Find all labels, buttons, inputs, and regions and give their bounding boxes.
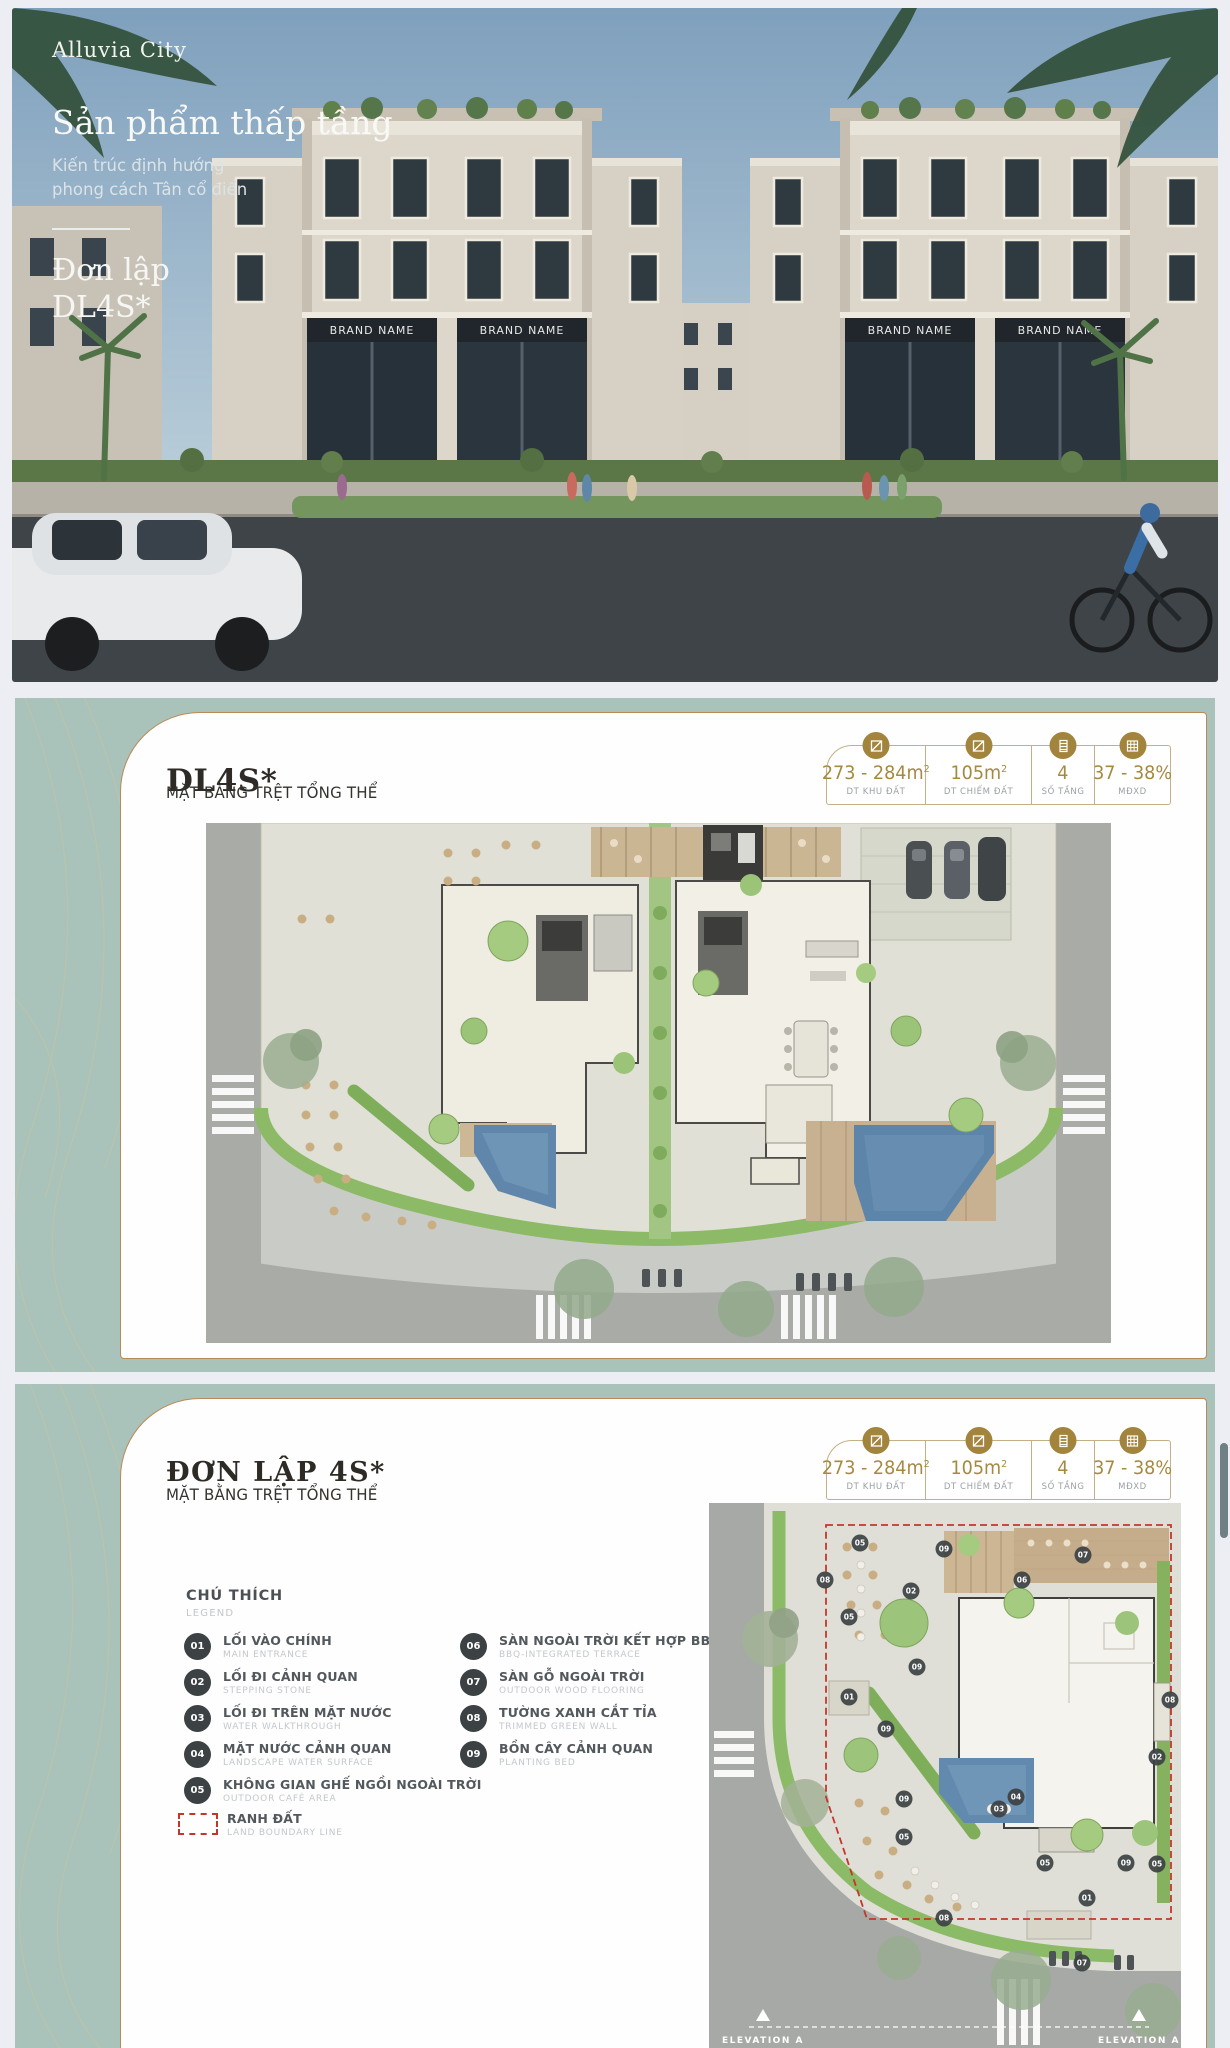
card2-title: ĐƠN LẬP 4S* — [166, 1457, 386, 1488]
plan-marker: 07 — [1074, 1955, 1091, 1972]
area-icon — [863, 732, 890, 759]
legend-item: 02LỐI ĐI CẢNH QUANSTEPPING STONE — [184, 1669, 474, 1705]
svg-text:05: 05 — [1040, 1859, 1050, 1868]
legend-item-label-vi: SÀN NGOÀI TRỜI KẾT HỢP BBQ — [499, 1633, 721, 1648]
legend-subtitle: LEGEND — [186, 1608, 234, 1619]
stat-label: SỐ TẦNG — [1042, 787, 1085, 797]
stat-value: 37 - 38% — [1093, 763, 1172, 784]
svg-text:09: 09 — [912, 1663, 922, 1672]
hero-subtitle: Kiến trúc định hướng phong cách Tân cổ đ… — [52, 154, 393, 202]
stat-floors: 4 SỐ TẦNG — [1032, 1441, 1095, 1499]
svg-text:02: 02 — [1152, 1753, 1162, 1762]
svg-text:01: 01 — [844, 1693, 854, 1702]
card-site-plan-dl4s: DL4S* MẶT BẰNG TRỆT TỔNG THỂ 273 - 284m2… — [15, 698, 1215, 1372]
legend-item-label-en: OUTDOOR WOOD FLOORING — [499, 1686, 645, 1696]
plan-marker: 03 — [991, 1801, 1008, 1818]
floors-icon — [1050, 1427, 1077, 1454]
site-plan-detail: ELEVATION A ELEVATION A 0509070602080509… — [709, 1503, 1181, 2048]
legend-item-number: 08 — [460, 1705, 487, 1732]
svg-text:07: 07 — [1078, 1551, 1088, 1560]
stat-label: DT CHIẾM ĐẤT — [944, 1482, 1013, 1492]
svg-text:02: 02 — [906, 1587, 916, 1596]
plan-marker: 05 — [1149, 1856, 1166, 1873]
legend-item-label-vi: RANH ĐẤT — [227, 1811, 343, 1826]
legend-item: 06SÀN NGOÀI TRỜI KẾT HỢP BBQBBQ-INTEGRAT… — [460, 1633, 700, 1669]
legend-item-label-vi: KHÔNG GIAN GHẾ NGỒI NGOÀI TRỜI — [223, 1777, 482, 1792]
stat-value: 273 - 284m — [822, 763, 924, 784]
svg-text:07: 07 — [1077, 1959, 1087, 1968]
legend-item: 04MẶT NƯỚC CẢNH QUANLANDSCAPE WATER SURF… — [184, 1741, 474, 1777]
plan-marker: 05 — [1037, 1855, 1054, 1872]
plan-marker: 04 — [1008, 1789, 1025, 1806]
plan-marker: 09 — [936, 1541, 953, 1558]
density-icon — [1119, 1427, 1146, 1454]
white-panel: ĐƠN LẬP 4S* MẶT BẰNG TRỆT TỔNG THỂ 273 -… — [120, 1398, 1207, 2048]
stat-density: 37 - 38% MĐXD — [1095, 1441, 1170, 1499]
site-plan-overview — [206, 823, 1111, 1343]
floors-icon — [1050, 732, 1077, 759]
legend-boundary-item: RANH ĐẤT LAND BOUNDARY LINE — [178, 1811, 343, 1838]
stats-bar: 273 - 284m2 DT KHU ĐẤT 105m2 DT CHIẾM ĐẤ… — [826, 1440, 1171, 1500]
legend-item: 07SÀN GỖ NGOÀI TRỜIOUTDOOR WOOD FLOORING — [460, 1669, 700, 1705]
legend-item-number: 07 — [460, 1669, 487, 1696]
plan-marker: 01 — [1079, 1890, 1096, 1907]
stat-label: DT CHIẾM ĐẤT — [944, 787, 1013, 797]
stat-land-area: 273 - 284m2 DT KHU ĐẤT — [827, 1441, 926, 1499]
stat-land-area: 273 - 284m2 DT KHU ĐẤT — [827, 746, 926, 804]
legend-item-label-en: TRIMMED GREEN WALL — [499, 1722, 657, 1732]
legend-item-number: 03 — [184, 1705, 211, 1732]
site-plan-overview-art — [206, 823, 1111, 1343]
site-plan-detail-art: ELEVATION A ELEVATION A 0509070602080509… — [709, 1503, 1181, 2048]
legend-column-left: 01LỐI VÀO CHÍNHMAIN ENTRANCE02LỐI ĐI CẢN… — [184, 1633, 474, 1813]
legend-item-number: 06 — [460, 1633, 487, 1660]
plan-marker: 08 — [1162, 1692, 1179, 1709]
legend-title: CHÚ THÍCH — [186, 1588, 283, 1604]
hero-title: Sản phẩm thấp tầng — [52, 103, 393, 142]
legend-item-label-en: STEPPING STONE — [223, 1686, 358, 1696]
stat-label: DT KHU ĐẤT — [847, 1482, 906, 1492]
legend-item-label-vi: TƯỜNG XANH CẮT TỈA — [499, 1705, 657, 1720]
stat-value: 105m — [950, 763, 1001, 784]
hero-subtitle-line1: Kiến trúc định hướng — [52, 154, 393, 178]
legend-item-label-en: LAND BOUNDARY LINE — [227, 1828, 343, 1838]
legend-item-label-vi: LỐI ĐI TRÊN MẶT NƯỚC — [223, 1705, 392, 1720]
plan-marker: 08 — [817, 1572, 834, 1589]
legend-item-label-en: BBQ-INTEGRATED TERRACE — [499, 1650, 721, 1660]
card2-subtitle: MẶT BẰNG TRỆT TỔNG THỂ — [166, 1485, 377, 1504]
legend-item: 01LỐI VÀO CHÍNHMAIN ENTRANCE — [184, 1633, 474, 1669]
stat-value: 4 — [1057, 763, 1068, 784]
stat-density: 37 - 38% MĐXD — [1095, 746, 1170, 804]
svg-text:08: 08 — [820, 1576, 830, 1585]
stat-label: SỐ TẦNG — [1042, 1482, 1085, 1492]
plan-marker: 05 — [852, 1535, 869, 1552]
plan-marker: 01 — [841, 1689, 858, 1706]
legend-column-right: 06SÀN NGOÀI TRỜI KẾT HỢP BBQBBQ-INTEGRAT… — [460, 1633, 700, 1777]
median-planting — [292, 496, 942, 518]
legend-item-label-vi: MẶT NƯỚC CẢNH QUAN — [223, 1741, 392, 1756]
elevation-label-left: ELEVATION A — [722, 2036, 804, 2046]
legend-item-number: 02 — [184, 1669, 211, 1696]
svg-text:09: 09 — [899, 1795, 909, 1804]
legend-item: 05KHÔNG GIAN GHẾ NGỒI NGOÀI TRỜIOUTDOOR … — [184, 1777, 474, 1813]
footprint-area-icon — [965, 732, 992, 759]
card-site-plan-don-lap-4s: ĐƠN LẬP 4S* MẶT BẰNG TRỆT TỔNG THỂ 273 -… — [15, 1384, 1215, 2048]
stat-sup: 2 — [1001, 1459, 1007, 1470]
hero-product-line1: Đơn lập — [52, 252, 393, 289]
legend-item-label-en: MAIN ENTRANCE — [223, 1650, 332, 1660]
hero-render: BRAND NAME BRAND NAME — [12, 8, 1218, 682]
stat-footprint-area: 105m2 DT CHIẾM ĐẤT — [926, 746, 1032, 804]
plan-marker: 05 — [896, 1829, 913, 1846]
stat-label: DT KHU ĐẤT — [847, 787, 906, 797]
legend-item: 09BỒN CÂY CẢNH QUANPLANTING BED — [460, 1741, 700, 1777]
legend-item-label-vi: LỐI VÀO CHÍNH — [223, 1633, 332, 1648]
brand-logo: Alluvia City — [52, 38, 393, 62]
hero-product-line2: DL4S* — [52, 289, 393, 326]
hero-subtitle-line2: phong cách Tân cổ điển — [52, 178, 393, 202]
svg-text:05: 05 — [1152, 1860, 1162, 1869]
stats-bar: 273 - 284m2 DT KHU ĐẤT 105m2 DT CHIẾM ĐẤ… — [826, 745, 1171, 805]
legend-item-label-vi: BỒN CÂY CẢNH QUAN — [499, 1741, 653, 1756]
boundary-line-swatch — [178, 1813, 218, 1835]
svg-text:03: 03 — [994, 1805, 1004, 1814]
legend-item-number: 09 — [460, 1741, 487, 1768]
plan-marker: 02 — [1149, 1749, 1166, 1766]
svg-text:05: 05 — [899, 1833, 909, 1842]
legend-item-number: 01 — [184, 1633, 211, 1660]
legend-item-number: 04 — [184, 1741, 211, 1768]
legend-item-label-vi: LỐI ĐI CẢNH QUAN — [223, 1669, 358, 1684]
stat-footprint-area: 105m2 DT CHIẾM ĐẤT — [926, 1441, 1032, 1499]
svg-text:09: 09 — [881, 1725, 891, 1734]
legend-item-label-vi: SÀN GỖ NGOÀI TRỜI — [499, 1669, 645, 1684]
stat-value: 273 - 284m — [822, 1458, 924, 1479]
page: BRAND NAME BRAND NAME — [0, 0, 1230, 2048]
elevation-label-right: ELEVATION A — [1098, 2036, 1180, 2046]
plan-marker: 09 — [1118, 1855, 1135, 1872]
legend-item-label-en: WATER WALKTHROUGH — [223, 1722, 392, 1732]
hero-product-name: Đơn lập DL4S* — [52, 252, 393, 326]
svg-text:09: 09 — [1121, 1859, 1131, 1868]
plan-marker: 02 — [903, 1583, 920, 1600]
plan-marker: 07 — [1075, 1547, 1092, 1564]
plan-marker: 09 — [878, 1721, 895, 1738]
svg-text:06: 06 — [1017, 1576, 1027, 1585]
plan-marker: 05 — [841, 1609, 858, 1626]
plan-marker: 06 — [1014, 1572, 1031, 1589]
svg-text:08: 08 — [1165, 1696, 1175, 1705]
stat-value: 4 — [1057, 1458, 1068, 1479]
footprint-area-icon — [965, 1427, 992, 1454]
card1-subtitle: MẶT BẰNG TRỆT TỔNG THỂ — [166, 783, 377, 802]
plan-marker: 09 — [909, 1659, 926, 1676]
legend-item-number: 05 — [184, 1777, 211, 1804]
hero-text-block: Alluvia City Sản phẩm thấp tầng Kiến trú… — [52, 38, 393, 326]
svg-text:09: 09 — [939, 1545, 949, 1554]
legend-item-label-en: OUTDOOR CAFÉ AREA — [223, 1794, 482, 1804]
svg-text:04: 04 — [1011, 1793, 1021, 1802]
stat-label: MĐXD — [1118, 787, 1147, 797]
svg-text:08: 08 — [939, 1914, 949, 1923]
scrollbar-thumb[interactable] — [1220, 1443, 1228, 1538]
stat-label: MĐXD — [1118, 1482, 1147, 1492]
white-panel: DL4S* MẶT BẰNG TRỆT TỔNG THỂ 273 - 284m2… — [120, 712, 1207, 1359]
stat-value: 105m — [950, 1458, 1001, 1479]
svg-text:05: 05 — [844, 1613, 854, 1622]
area-icon — [863, 1427, 890, 1454]
svg-text:05: 05 — [855, 1539, 865, 1548]
stat-floors: 4 SỐ TẦNG — [1032, 746, 1095, 804]
divider — [52, 228, 130, 230]
plan-marker: 09 — [896, 1791, 913, 1808]
legend-item-label-en: PLANTING BED — [499, 1758, 653, 1768]
legend-item-label-en: LANDSCAPE WATER SURFACE — [223, 1758, 392, 1768]
plan-marker: 08 — [936, 1910, 953, 1927]
stat-sup: 2 — [1001, 764, 1007, 775]
legend-item: 08TƯỜNG XANH CẮT TỈATRIMMED GREEN WALL — [460, 1705, 700, 1741]
density-icon — [1119, 732, 1146, 759]
svg-text:01: 01 — [1082, 1894, 1092, 1903]
legend-item: 03LỐI ĐI TRÊN MẶT NƯỚCWATER WALKTHROUGH — [184, 1705, 474, 1741]
stat-value: 37 - 38% — [1093, 1458, 1172, 1479]
